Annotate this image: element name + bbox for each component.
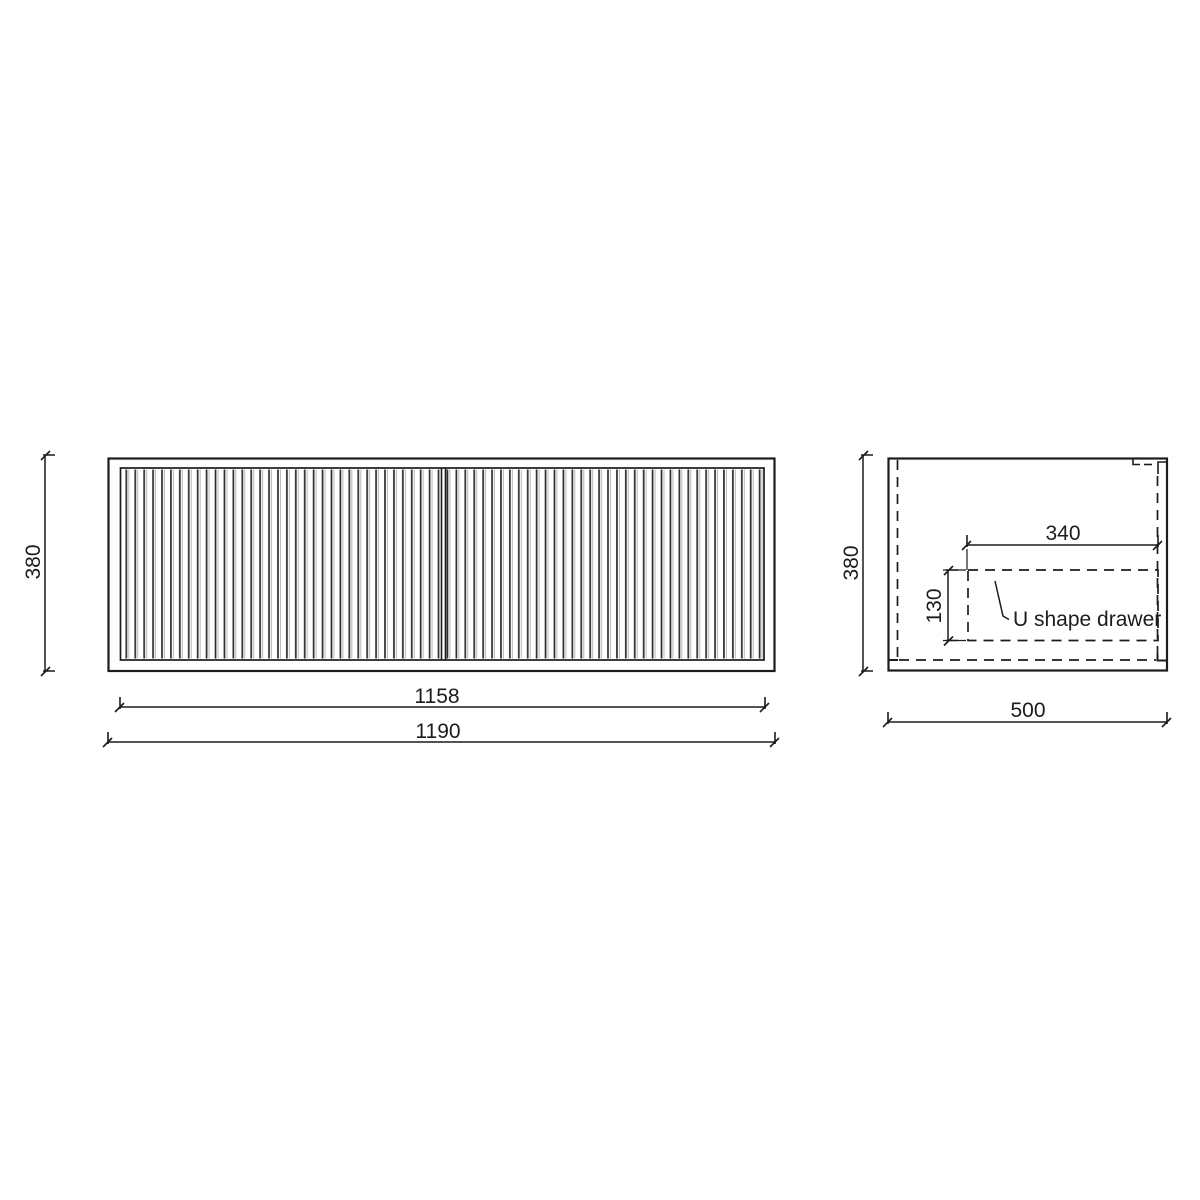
dim-side-height: 380 [840, 451, 873, 676]
dim-drawer-depth: 130 [923, 566, 966, 646]
technical-drawing: 380 1158 1190 U shape drawer [0, 0, 1200, 1200]
dimension-ticks [944, 566, 958, 646]
side-depth-label: 500 [1010, 699, 1045, 722]
side-cabinet-outline [889, 459, 1168, 671]
drawer-label: U shape drawer [1013, 608, 1161, 631]
front-overall-width-label: 1190 [415, 720, 460, 743]
dim-drawer-width: 340 [962, 522, 1162, 570]
side-view: U shape drawer [889, 459, 1168, 671]
front-height-label: 380 [22, 544, 45, 579]
drawer-width-label: 340 [1045, 522, 1080, 545]
top-right-rail-section [1158, 462, 1167, 474]
drawer-leader-line [995, 581, 1009, 620]
front-view [109, 459, 775, 672]
dim-front-door-span: 1158 [115, 685, 769, 712]
side-dimensions: 380 340 130 500 [840, 451, 1171, 727]
dim-side-depth: 500 [883, 699, 1171, 727]
front-right-door-fluting [447, 470, 764, 659]
bottom-right-rail-section [1158, 654, 1167, 661]
side-height-label: 380 [840, 545, 863, 580]
drawer-depth-label: 130 [923, 588, 946, 623]
front-left-door-fluting [122, 470, 440, 659]
dim-front-height: 380 [22, 451, 55, 676]
dim-front-overall-width: 1190 [103, 720, 779, 747]
front-door-span-label: 1158 [414, 685, 459, 708]
